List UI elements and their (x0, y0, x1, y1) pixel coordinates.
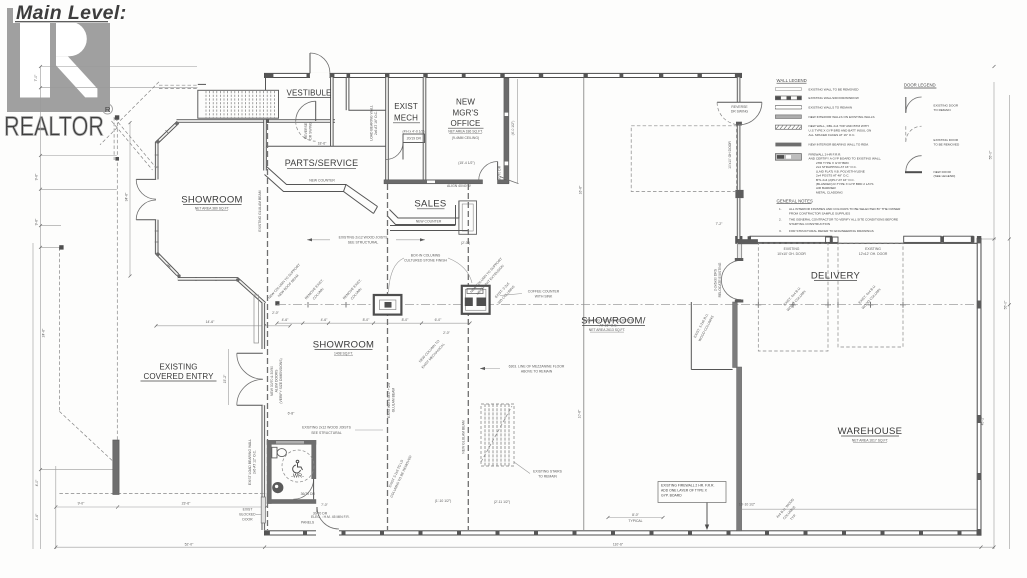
svg-text:GYP. BOARD: GYP. BOARD (661, 494, 682, 498)
svg-text:DELIVERY: DELIVERY (811, 270, 861, 281)
svg-text:(9-4MM CEILING): (9-4MM CEILING) (452, 136, 479, 140)
svg-text:WAREHOUSE: WAREHOUSE (838, 426, 903, 437)
svg-text:STARTING CONSTRUCTION: STARTING CONSTRUCTION (789, 222, 830, 226)
svg-text:1.: 1. (779, 207, 782, 211)
svg-text:DR SWING: DR SWING (309, 122, 313, 140)
svg-text:GLULAM BEAM: GLULAM BEAM (392, 388, 396, 413)
svg-text:U.S TYPE X GYP BRD AND BATT IN: U.S TYPE X GYP BRD AND BATT INSUL ON (809, 129, 872, 133)
svg-text:8'-0": 8'-0" (632, 513, 640, 517)
svg-text:EXISTING: EXISTING (159, 362, 197, 371)
svg-text:NEW COUNTER: NEW COUNTER (416, 219, 442, 223)
svg-text:2.: 2. (779, 218, 782, 222)
svg-text:NEW GLULAM BEAM: NEW GLULAM BEAM (462, 420, 466, 454)
svg-text:NEW 30/70 & 30/90: NEW 30/70 & 30/90 (270, 366, 274, 396)
svg-text:SEE STRUCTURAL: SEE STRUCTURAL (348, 241, 379, 245)
svg-text:2'-0": 2'-0" (443, 331, 451, 335)
svg-text:10'-6": 10'-6" (578, 409, 582, 418)
svg-text:PARTS/SERVICE: PARTS/SERVICE (285, 158, 359, 168)
svg-text:GENERAL NOTES: GENERAL NOTES (777, 198, 814, 203)
svg-text:110'-6": 110'-6" (613, 542, 624, 546)
svg-text:EXISTING 2x12 WOOD JOISTS: EXISTING 2x12 WOOD JOISTS (339, 235, 389, 239)
svg-text:(15'-4 1/2"): (15'-4 1/2") (458, 161, 475, 165)
svg-text:9'-0": 9'-0" (78, 502, 86, 506)
svg-text:7'-0": 7'-0" (34, 74, 38, 82)
svg-text:8'-0": 8'-0" (402, 318, 410, 322)
svg-text:9'-6": 9'-6" (35, 173, 39, 181)
svg-text:55'-0": 55'-0" (1004, 300, 1008, 309)
svg-text:6'-8": 6'-8" (288, 412, 296, 416)
svg-text:SALES: SALES (414, 199, 446, 210)
svg-text:15'-2": 15'-2" (223, 374, 227, 383)
svg-text:10'x10' OH DOOR: 10'x10' OH DOOR (728, 141, 732, 169)
svg-text:R: R (105, 105, 111, 114)
svg-text:10'x10' OH. DOOR: 10'x10' OH. DOOR (777, 252, 806, 256)
svg-text:3.: 3. (779, 229, 782, 233)
svg-text:NET AREA 380 SQ.FT.: NET AREA 380 SQ.FT. (195, 206, 230, 210)
svg-text:16'-6": 16'-6" (579, 185, 583, 194)
svg-text:SEE STRUCTURAL: SEE STRUCTURAL (311, 431, 342, 435)
svg-text:30/70 DR: 30/70 DR (313, 511, 328, 515)
svg-text:30/70 DR: 30/70 DR (498, 165, 502, 180)
svg-text:ADD ONE LAYER OF TYPE X: ADD ONE LAYER OF TYPE X (661, 489, 708, 493)
svg-text:ALIGN 40/40 W: ALIGN 40/40 W (447, 184, 472, 188)
svg-text:(4'-0 1/2"): (4'-0 1/2") (511, 121, 515, 136)
svg-text:EXISTING WALLS TO REMAIN: EXISTING WALLS TO REMAIN (809, 105, 853, 109)
svg-text:2'-0": 2'-0" (272, 311, 280, 315)
svg-text:(1'-10 1/2"): (1'-10 1/2") (435, 499, 452, 503)
svg-text:23'-6": 23'-6" (182, 502, 191, 506)
svg-text:6'-0": 6'-0" (435, 318, 443, 322)
svg-text:EXISTING: EXISTING (865, 247, 881, 251)
svg-text:2-2x6x30 DRS: 2-2x6x30 DRS (714, 268, 718, 291)
svg-text:REVERSE: REVERSE (731, 105, 748, 109)
svg-text:DR SWING: DR SWING (731, 109, 749, 113)
svg-text:ELEC. : H.M. 45 MIN F.R.: ELEC. : H.M. 45 MIN F.R. (311, 515, 350, 519)
svg-text:TO BE REMOVED: TO BE REMOVED (934, 142, 960, 146)
svg-text:(2'-0"): (2'-0") (461, 241, 470, 245)
svg-text:OFFICE: OFFICE (451, 119, 481, 128)
svg-text:DOOR: DOOR (242, 518, 253, 522)
svg-text:(VERIFY SIZE DIMENSIONS): (VERIFY SIZE DIMENSIONS) (279, 358, 283, 403)
svg-text:ABOVE TO REMAIN: ABOVE TO REMAIN (521, 369, 553, 373)
svg-text:2x6 AT 12" O.C.: 2x6 AT 12" O.C. (252, 450, 256, 474)
svg-text:EXISTING GLULAM BEAM: EXISTING GLULAM BEAM (258, 190, 262, 231)
svg-text:12'x12' OH. DOOR: 12'x12' OH. DOOR (859, 252, 888, 256)
svg-text:DOOR LEGEND: DOOR LEGEND (904, 83, 936, 88)
svg-text:FOR STRUCTURAL REFER TO ENGINE: FOR STRUCTURAL REFER TO ENGINEERING DRAW… (789, 229, 874, 233)
svg-text:NEW COUNTER: NEW COUNTER (309, 178, 335, 182)
svg-text:EXIST: EXIST (243, 508, 253, 512)
svg-text:FROM CONTRACTOR SAMPLE SUPPLIE: FROM CONTRACTOR SAMPLE SUPPLIES (789, 211, 850, 215)
svg-text:4'-6": 4'-6" (321, 318, 329, 322)
svg-text:PANELS: PANELS (301, 520, 315, 524)
svg-text:(4'H x 4'-0 1/2): (4'H x 4'-0 1/2) (402, 130, 424, 134)
svg-text:EXIST: EXIST (394, 102, 418, 111)
svg-text:EXISTING STAIRS: EXISTING STAIRS (533, 470, 563, 474)
svg-text:24'-6": 24'-6" (42, 328, 46, 337)
svg-text:EXISTING WALLS/DOOR/WINDOW: EXISTING WALLS/DOOR/WINDOW (809, 96, 859, 100)
svg-text:20/19 DR: 20/19 DR (407, 137, 422, 141)
svg-text:BOX-IN COLUMNS: BOX-IN COLUMNS (411, 253, 441, 257)
svg-text:NEW: NEW (456, 97, 475, 106)
svg-text:NEW INTERIOR WALLS ON EXISTING: NEW INTERIOR WALLS ON EXISTING WALLS (809, 115, 875, 119)
svg-text:7'-2": 7'-2" (716, 222, 724, 226)
svg-text:NEW INTERIOR BEARING WALL TO R: NEW INTERIOR BEARING WALL TO REM. (809, 142, 869, 146)
svg-text:(2'-11 1/2"): (2'-11 1/2") (494, 500, 510, 504)
svg-text:EXISTING FIREWALL 2 HR. F.R.R.: EXISTING FIREWALL 2 HR. F.R.R. (661, 484, 714, 488)
svg-text:MGR'S: MGR'S (452, 108, 478, 117)
svg-text:8'-0": 8'-0" (363, 318, 371, 322)
svg-text:AT 16" O.C.: AT 16" O.C. (600, 323, 618, 327)
svg-text:TYPICAL: TYPICAL (628, 519, 642, 523)
svg-text:2x6 AT 16" O.C.: 2x6 AT 16" O.C. (374, 111, 378, 135)
svg-text:CULTURED STONE FINISH: CULTURED STONE FINISH (404, 258, 447, 262)
svg-text:LOAD BEARING WALL: LOAD BEARING WALL (370, 105, 374, 141)
svg-text:(SEE LEGEND): (SEE LEGEND) (934, 174, 956, 178)
svg-text:REALTOR: REALTOR (4, 111, 104, 142)
svg-text:SHOWROOM: SHOWROOM (181, 194, 243, 205)
svg-text:VESTIBULE: VESTIBULE (287, 89, 332, 98)
svg-text:METAL CLADDING: METAL CLADDING (816, 190, 843, 194)
svg-text:ALUM DOORS: ALUM DOORS (275, 369, 279, 393)
svg-text:1'-6": 1'-6" (35, 513, 39, 521)
svg-text:NET AREA 186 SQ.FT.: NET AREA 186 SQ.FT. (448, 129, 483, 133)
svg-text:52'-0": 52'-0" (185, 542, 194, 546)
svg-text:4'-6": 4'-6" (282, 318, 290, 322)
svg-text:1408 SQ.FT.: 1408 SQ.FT. (334, 352, 353, 356)
svg-text:COFFEE COUNTER: COFFEE COUNTER (528, 289, 560, 293)
svg-text:SHOWROOM: SHOWROOM (313, 339, 375, 350)
svg-text:EXISTING WALL TO BE REMOVED: EXISTING WALL TO BE REMOVED (809, 87, 860, 91)
svg-text:REVERSE: REVERSE (304, 122, 308, 139)
svg-text:EXIST LOAD BEARING WALL: EXIST LOAD BEARING WALL (248, 439, 252, 485)
svg-text:16'-10 1/2": 16'-10 1/2" (739, 502, 756, 506)
svg-text:NET AREA 1617 SQ.FT.: NET AREA 1617 SQ.FT. (852, 439, 889, 443)
svg-text:18'-6": 18'-6" (318, 141, 327, 145)
svg-text:6303. LINE OF MEZZANINE FLOOR: 6303. LINE OF MEZZANINE FLOOR (509, 364, 565, 368)
svg-text:9'-6": 9'-6" (35, 218, 39, 226)
svg-text:45'-2": 45'-2" (981, 416, 985, 425)
svg-text:34'-6": 34'-6" (125, 192, 129, 201)
svg-text:WALL LEGEND: WALL LEGEND (777, 78, 807, 83)
svg-text:Main Level:: Main Level: (16, 2, 127, 24)
svg-text:EXISTING 2x12 WOOD JOISTS: EXISTING 2x12 WOOD JOISTS (584, 319, 634, 323)
svg-text:7'-0": 7'-0" (321, 503, 329, 507)
svg-text:NEW WALL, DBL 2x4 TOP AND BTM: NEW WALL, DBL 2x4 TOP AND BTM WITH (809, 124, 869, 128)
svg-text:MECH: MECH (394, 113, 418, 122)
svg-text:14'-6": 14'-6" (206, 320, 215, 324)
svg-text:RELOCATE EXISTING: RELOCATE EXISTING (718, 262, 722, 297)
svg-text:36/70 DR: 36/70 DR (301, 492, 316, 496)
svg-text:55'-0": 55'-0" (989, 150, 993, 159)
svg-text:EXISTING 8.5x17 +-24": EXISTING 8.5x17 +-24" (387, 381, 391, 418)
svg-text:ALL SPACED FACES AT 16" O.C.: ALL SPACED FACES AT 16" O.C. (809, 133, 856, 137)
svg-text:BLOCKED: BLOCKED (239, 513, 256, 517)
svg-text:WITH SINK: WITH SINK (535, 294, 553, 298)
svg-text:TO REMAIN: TO REMAIN (538, 475, 557, 479)
svg-text:EXISTING 2x12 WOOD JOISTS: EXISTING 2x12 WOOD JOISTS (302, 426, 352, 430)
svg-text:TO REMAIN: TO REMAIN (934, 108, 951, 112)
svg-text:4'-0": 4'-0" (35, 479, 39, 487)
svg-text:-WR-: -WR- (291, 474, 304, 480)
svg-text:NET AREA 2613 SQ.FT.: NET AREA 2613 SQ.FT. (589, 328, 626, 332)
svg-text:COVERED ENTRY: COVERED ENTRY (143, 372, 214, 381)
svg-text:EXISTING: EXISTING (784, 247, 800, 251)
